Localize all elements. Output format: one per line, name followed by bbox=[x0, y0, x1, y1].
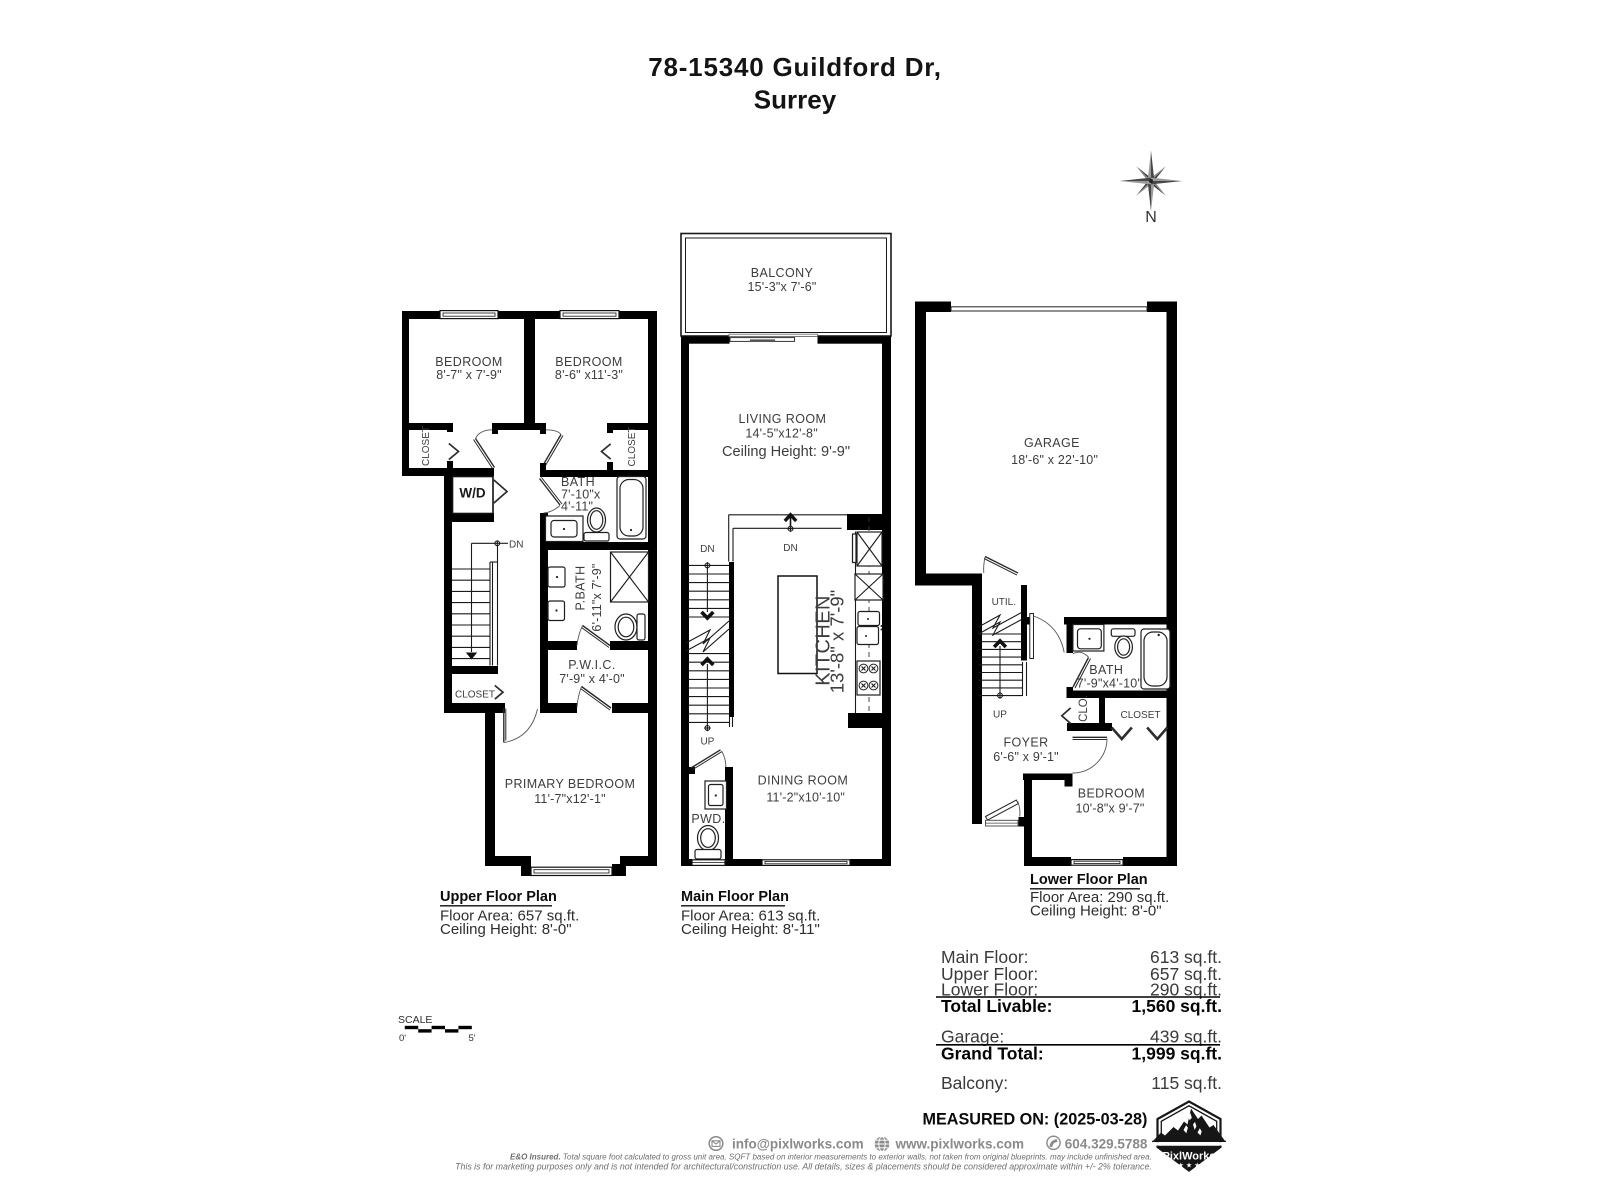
svg-text:DN: DN bbox=[783, 543, 797, 554]
svg-text:7'-9"x4'-10": 7'-9"x4'-10" bbox=[1077, 677, 1142, 691]
svg-text:Ceiling Height: 8'-0": Ceiling Height: 8'-0" bbox=[440, 921, 572, 938]
svg-text:P.W.I.C.: P.W.I.C. bbox=[568, 658, 615, 672]
svg-text:10'-8"x 9'-7": 10'-8"x 9'-7" bbox=[1075, 802, 1144, 816]
svg-text:1,560 sq.ft.: 1,560 sq.ft. bbox=[1132, 996, 1222, 1016]
svg-text:UP: UP bbox=[700, 737, 714, 748]
svg-text:P.BATH: P.BATH bbox=[574, 565, 588, 610]
svg-text:6'-6" x 9'-1": 6'-6" x 9'-1" bbox=[993, 750, 1059, 764]
svg-text:Grand Total:: Grand Total: bbox=[941, 1044, 1044, 1064]
svg-text:Total Livable:: Total Livable: bbox=[941, 996, 1053, 1016]
svg-text:CLO.: CLO. bbox=[1078, 695, 1090, 722]
svg-text:DN: DN bbox=[700, 544, 714, 555]
svg-text:www.pixlworks.com: www.pixlworks.com bbox=[895, 1137, 1025, 1152]
svg-text:UP: UP bbox=[993, 710, 1007, 721]
svg-text:CLOSET: CLOSET bbox=[421, 426, 432, 466]
svg-text:DN: DN bbox=[509, 540, 523, 551]
svg-text:PWD.: PWD. bbox=[691, 812, 725, 826]
svg-text:14'-5"x12'-8": 14'-5"x12'-8" bbox=[745, 427, 818, 441]
svg-text:CLOSET: CLOSET bbox=[627, 426, 638, 466]
svg-text:W/D: W/D bbox=[459, 486, 485, 501]
svg-text:N: N bbox=[1145, 209, 1157, 226]
svg-text:PixlWorks: PixlWorks bbox=[1163, 1151, 1216, 1163]
svg-text:Balcony:: Balcony: bbox=[941, 1073, 1008, 1093]
svg-text:CLOSET: CLOSET bbox=[1120, 710, 1160, 721]
svg-text:PRIMARY BEDROOM: PRIMARY BEDROOM bbox=[505, 777, 636, 791]
svg-text:BEDROOM: BEDROOM bbox=[555, 355, 622, 369]
svg-text:FOYER: FOYER bbox=[1003, 736, 1048, 750]
svg-text:Upper Floor Plan: Upper Floor Plan bbox=[440, 889, 557, 905]
svg-text:8'-6" x11'-3": 8'-6" x11'-3" bbox=[555, 368, 623, 382]
svg-text:15'-3"x 7'-6": 15'-3"x 7'-6" bbox=[747, 280, 816, 294]
svg-text:115 sq.ft.: 115 sq.ft. bbox=[1151, 1073, 1222, 1093]
svg-text:MEASURED ON: (2025-03-28): MEASURED ON: (2025-03-28) bbox=[923, 1111, 1148, 1129]
svg-text:Main Floor Plan: Main Floor Plan bbox=[681, 889, 789, 905]
svg-text:LIVING ROOM: LIVING ROOM bbox=[739, 412, 827, 426]
svg-text:1,999 sq.ft.: 1,999 sq.ft. bbox=[1132, 1044, 1222, 1064]
svg-text:E&O Insured. Total square foo: E&O Insured. Total square foot calculate… bbox=[510, 1153, 1152, 1162]
svg-text:5': 5' bbox=[469, 1033, 476, 1044]
svg-text:18'-6" x 22'-10": 18'-6" x 22'-10" bbox=[1011, 453, 1098, 467]
svg-text:8'-7" x 7'-9": 8'-7" x 7'-9" bbox=[436, 368, 502, 382]
svg-text:SCALE: SCALE bbox=[398, 1014, 432, 1026]
svg-text:BATH: BATH bbox=[1089, 663, 1123, 677]
svg-text:6'-11"x 7'-9": 6'-11"x 7'-9" bbox=[590, 563, 604, 631]
svg-text:This is for marketing purposes: This is for marketing purposes only and … bbox=[455, 1162, 1152, 1172]
svg-text:Lower Floor Plan: Lower Floor Plan bbox=[1030, 872, 1148, 888]
svg-text:11'-2"x10'-10": 11'-2"x10'-10" bbox=[766, 791, 845, 805]
svg-text:GARAGE: GARAGE bbox=[1024, 436, 1080, 450]
svg-text:11'-7"x12'-1": 11'-7"x12'-1" bbox=[534, 792, 606, 806]
svg-text:info@pixlworks.com: info@pixlworks.com bbox=[732, 1137, 864, 1152]
svg-text:604.329.5788: 604.329.5788 bbox=[1065, 1137, 1148, 1152]
svg-text:Ceiling Height: 9'-9": Ceiling Height: 9'-9" bbox=[722, 444, 850, 460]
svg-text:BEDROOM: BEDROOM bbox=[1078, 787, 1145, 801]
svg-text:CLOSET: CLOSET bbox=[455, 690, 495, 701]
svg-text:78-15340 Guildford Dr,: 78-15340 Guildford Dr, bbox=[648, 52, 942, 82]
svg-text:13'-8" x 7'-9": 13'-8" x 7'-9" bbox=[827, 590, 848, 694]
svg-text:BALCONY: BALCONY bbox=[751, 266, 814, 280]
svg-text:Ceiling Height: 8'-11": Ceiling Height: 8'-11" bbox=[681, 921, 820, 938]
svg-text:★ ★ ★: ★ ★ ★ bbox=[1178, 1162, 1201, 1170]
svg-text:Surrey: Surrey bbox=[754, 85, 837, 115]
svg-text:7'-9" x 4'-0": 7'-9" x 4'-0" bbox=[559, 672, 625, 686]
svg-text:Ceiling Height: 8'-0": Ceiling Height: 8'-0" bbox=[1030, 903, 1162, 920]
svg-text:DINING ROOM: DINING ROOM bbox=[758, 774, 849, 788]
svg-text:UTIL.: UTIL. bbox=[992, 597, 1016, 608]
svg-text:BEDROOM: BEDROOM bbox=[435, 355, 502, 369]
svg-text:4'-11": 4'-11" bbox=[561, 500, 593, 514]
svg-text:0': 0' bbox=[399, 1033, 406, 1044]
